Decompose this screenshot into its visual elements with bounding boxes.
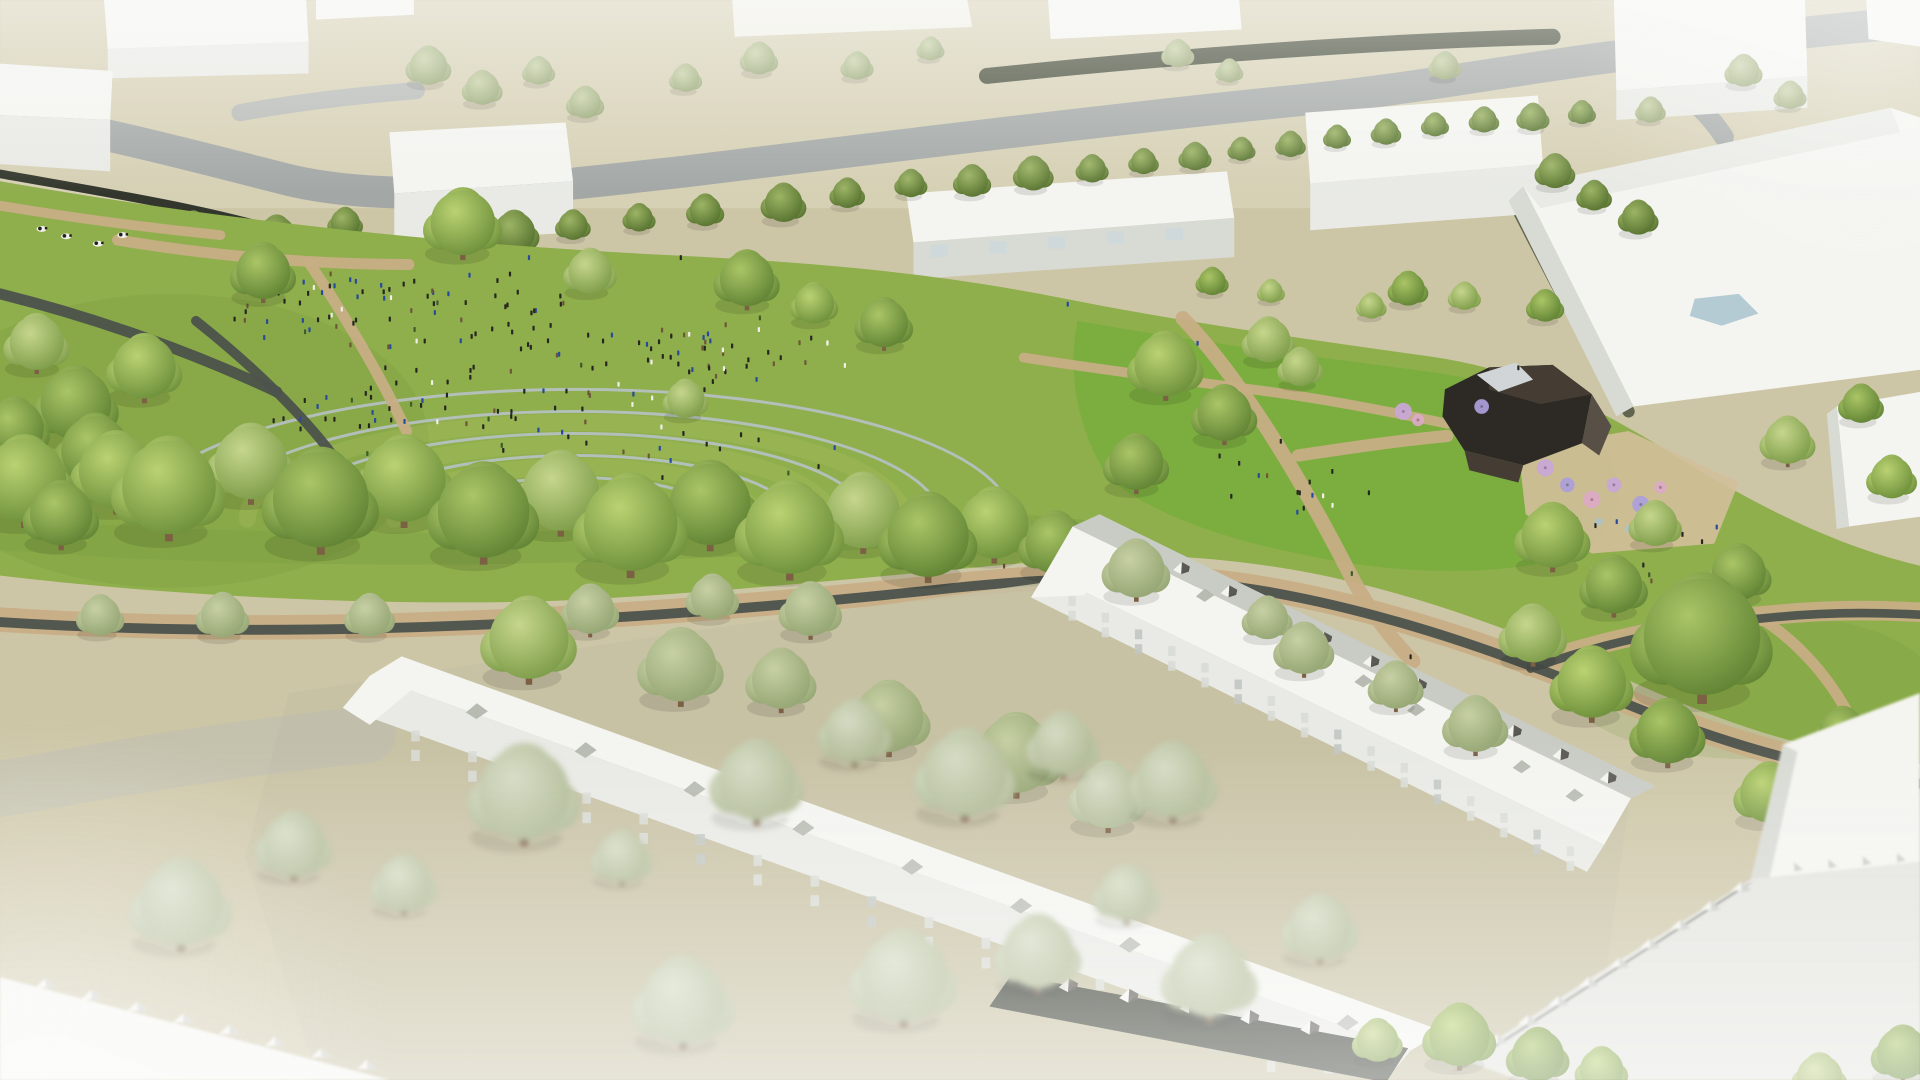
architectural-rendering: Aerial architectural rendering of an urb… (0, 0, 1920, 1080)
scene-svg (0, 0, 1920, 1080)
